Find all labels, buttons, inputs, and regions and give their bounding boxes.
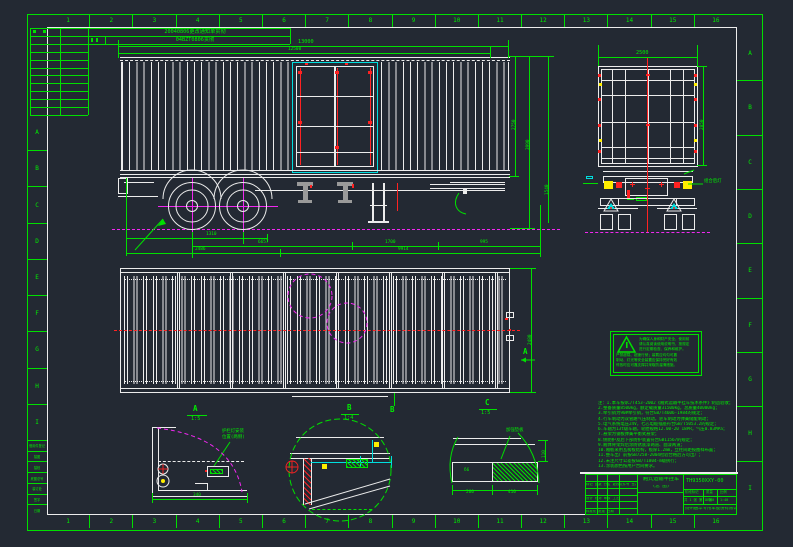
warning-text: 为确保人身和财产安全，使用前请认真阅读使用说明书，按规定进行定期检查、保养和维护… bbox=[616, 337, 696, 370]
drawing-stroke bbox=[601, 95, 695, 96]
tb-scale-value: 1:40 bbox=[720, 499, 728, 502]
detail-c-scale: 1:5 bbox=[481, 411, 490, 416]
ground-line bbox=[112, 229, 560, 230]
drawing-stroke bbox=[717, 489, 718, 504]
drawing-stroke bbox=[352, 184, 354, 188]
drawing-stroke bbox=[683, 504, 737, 505]
zone-letter: C bbox=[737, 135, 763, 189]
drawing-stroke bbox=[210, 469, 223, 474]
mini-table: 借用件登记描图描校底图总号装订处签字日期 bbox=[27, 440, 47, 515]
mini-table-row: 日期 bbox=[27, 504, 47, 515]
dim-overall-length: 13000 bbox=[298, 40, 314, 45]
drawing-stroke bbox=[603, 171, 693, 172]
drawing-stroke bbox=[493, 463, 537, 481]
drawing-stroke bbox=[368, 221, 389, 223]
drawing-stroke bbox=[192, 178, 193, 234]
drawing-stroke bbox=[296, 126, 374, 127]
dim-frame-height: 1540 bbox=[546, 184, 550, 195]
rear-centerline bbox=[647, 58, 648, 232]
drawing-stroke bbox=[30, 107, 88, 108]
detail-c-cell: δ6 bbox=[464, 469, 469, 473]
drawing-stroke bbox=[304, 458, 311, 505]
drawing-stroke bbox=[661, 182, 662, 187]
drawing-stroke bbox=[510, 268, 536, 269]
drawing-stroke bbox=[152, 427, 153, 497]
detail-b-scale: 1:4 bbox=[344, 416, 353, 421]
tb-left-row3: 标准化 批准 日期 bbox=[586, 510, 636, 513]
drawing-stroke bbox=[548, 57, 549, 223]
drawing-stroke bbox=[298, 121, 302, 124]
tb-mass-value: 8500 bbox=[706, 499, 714, 502]
drawing-stroke bbox=[292, 396, 388, 397]
drawing-stroke bbox=[601, 158, 695, 159]
zone-letter: D bbox=[27, 223, 47, 259]
zone-letter: I bbox=[737, 461, 763, 515]
tb-left-row2: 设计 校对 审核 工艺 bbox=[586, 497, 636, 500]
drawing-stroke bbox=[126, 238, 267, 239]
drawing-stroke bbox=[337, 68, 338, 165]
drawing-stroke bbox=[370, 205, 387, 206]
plan-centerline bbox=[114, 330, 520, 331]
zone-number: 13 bbox=[564, 14, 607, 27]
drawing-stroke bbox=[370, 190, 387, 191]
drawing-stroke bbox=[192, 232, 193, 258]
drawing-stroke bbox=[30, 52, 88, 53]
drawing-stroke bbox=[352, 242, 353, 250]
drawing-stroke bbox=[280, 249, 281, 257]
drawing-stroke bbox=[30, 44, 290, 45]
drawing-stroke bbox=[120, 60, 510, 61]
drawing-stroke bbox=[585, 232, 710, 233]
drawing-stroke bbox=[598, 45, 599, 66]
drawing-stroke bbox=[598, 98, 601, 101]
drawing-stroke bbox=[490, 47, 491, 58]
zone-number: 4 bbox=[176, 14, 219, 27]
zone-letter: C bbox=[27, 186, 47, 222]
drawing-stroke bbox=[509, 329, 511, 331]
drawing-stroke bbox=[30, 68, 88, 69]
drawing-stroke bbox=[598, 124, 601, 127]
drawing-stroke bbox=[657, 208, 697, 209]
drawing-stroke bbox=[335, 146, 339, 149]
detail-c-callout: 加强垫板 bbox=[506, 429, 524, 433]
detail-c-dim-2: 410 bbox=[508, 491, 516, 495]
drawing-stroke bbox=[694, 124, 697, 127]
tb-mass-label: 质量 bbox=[706, 491, 713, 494]
zone-number: 14 bbox=[607, 14, 650, 27]
drawing-stroke bbox=[598, 208, 638, 209]
drawing-stroke bbox=[368, 121, 372, 124]
zone-strip-bottom: 12345678910111213141516 bbox=[47, 515, 737, 528]
drawing-stroke bbox=[625, 70, 626, 163]
drawing-stroke bbox=[509, 176, 519, 177]
detail-a-callout-1: 护栏灯安装 bbox=[222, 430, 244, 434]
tb-product-sub: (总 图) bbox=[640, 485, 682, 489]
drawing-stroke bbox=[243, 232, 244, 244]
drawing-stroke bbox=[585, 501, 637, 502]
dim-kingpin-to-axle: 9914 bbox=[398, 248, 409, 252]
lamp-callout: 组合后灯 bbox=[704, 180, 722, 184]
mini-table-row: 签字 bbox=[27, 494, 47, 505]
drawing-stroke bbox=[118, 46, 509, 47]
drawing-stroke bbox=[538, 461, 548, 462]
zone-number: 14 bbox=[607, 515, 650, 528]
drawing-stroke bbox=[335, 71, 339, 74]
drawing-stroke bbox=[322, 464, 327, 469]
drawing-stroke bbox=[374, 442, 379, 447]
detail-a-callout-2: 位置(两侧) bbox=[222, 436, 245, 440]
drawing-stroke bbox=[601, 80, 695, 81]
zone-number: 16 bbox=[694, 14, 737, 27]
drawing-stroke bbox=[298, 200, 312, 203]
technical-notes: 注：1.本车按QC/T453-2002《厢式运输半挂车技术条件》制造验收；2.整… bbox=[598, 401, 738, 469]
zone-number: 15 bbox=[651, 515, 694, 528]
drawing-stroke bbox=[683, 496, 737, 497]
stop-lamp-left bbox=[616, 182, 622, 188]
drawing-stroke bbox=[599, 139, 602, 142]
detail-c-dim-1: 260 bbox=[466, 491, 474, 495]
drawing-stroke bbox=[343, 186, 348, 201]
drawing-stroke bbox=[694, 83, 697, 86]
drawing-stroke bbox=[152, 493, 153, 503]
detail-c-dim-right: 110 bbox=[543, 450, 547, 458]
zone-number: 7 bbox=[305, 515, 348, 528]
dim-body-length: 12500 bbox=[288, 48, 301, 52]
zone-number: 13 bbox=[564, 515, 607, 528]
drawing-stroke bbox=[697, 66, 707, 67]
zone-number: 3 bbox=[132, 14, 175, 27]
drawing-stroke bbox=[510, 392, 536, 393]
mini-table-row: 装订处 bbox=[27, 483, 47, 494]
zone-number: 15 bbox=[651, 14, 694, 27]
kingpin bbox=[463, 188, 467, 194]
zone-number: 10 bbox=[435, 14, 478, 27]
drawing-stroke bbox=[598, 74, 601, 77]
drawing-stroke bbox=[124, 182, 154, 183]
drawing-stroke bbox=[118, 53, 491, 54]
dim-rear-height: 2850 bbox=[701, 119, 705, 130]
drawing-stroke bbox=[243, 178, 244, 234]
zone-letter: F bbox=[737, 298, 763, 352]
drawing-stroke bbox=[601, 147, 695, 148]
drawing-stroke bbox=[120, 170, 510, 171]
tb-scale-label: 比例 bbox=[720, 491, 727, 494]
drawing-stroke bbox=[120, 174, 510, 175]
zone-number: 2 bbox=[89, 14, 132, 27]
zone-strip-right: ABCDEFGHI bbox=[737, 27, 763, 515]
drawing-stroke bbox=[30, 36, 290, 37]
drawing-stroke bbox=[383, 183, 385, 221]
zone-letter: I bbox=[27, 404, 47, 440]
drawing-stroke bbox=[158, 461, 244, 462]
drawing-stroke bbox=[312, 509, 372, 510]
zone-number: 6 bbox=[262, 14, 305, 27]
drawing-stroke bbox=[207, 483, 208, 491]
drawing-stroke bbox=[158, 427, 159, 491]
drawing-stroke bbox=[247, 493, 248, 503]
drawing-stroke bbox=[158, 490, 247, 491]
stop-lamp-right bbox=[674, 182, 680, 188]
detail-c-label: C bbox=[485, 399, 490, 407]
detail-a-label: A bbox=[193, 405, 198, 413]
detail-a-scale: 1:5 bbox=[191, 417, 200, 422]
zone-number: 8 bbox=[348, 515, 391, 528]
zone-number: 9 bbox=[392, 515, 435, 528]
dim-gear-span: 1700 bbox=[385, 241, 396, 245]
drawing-stroke bbox=[30, 28, 31, 115]
drawing-stroke bbox=[43, 30, 46, 33]
zone-number: 10 bbox=[435, 515, 478, 528]
drawing-stroke bbox=[455, 444, 535, 445]
drawing-stroke bbox=[124, 381, 506, 382]
zone-letter: H bbox=[737, 406, 763, 460]
drawing-stroke bbox=[627, 190, 630, 198]
zone-letter: H bbox=[27, 368, 47, 404]
drawing-stroke bbox=[618, 198, 619, 206]
drawing-stroke bbox=[585, 508, 637, 509]
drawing-stroke bbox=[683, 474, 684, 515]
drawing-stroke bbox=[105, 36, 106, 44]
drawing-stroke bbox=[298, 71, 302, 74]
zone-number: 8 bbox=[348, 14, 391, 27]
drawing-stroke bbox=[598, 150, 601, 153]
drawing-stroke bbox=[637, 492, 683, 493]
drawing-stroke bbox=[601, 122, 695, 123]
drawing-stroke bbox=[30, 75, 88, 76]
drawing-stroke bbox=[683, 70, 684, 163]
tb-stage-label: 阶段标记 bbox=[685, 491, 699, 494]
drawing-stroke bbox=[195, 483, 207, 484]
drawing-stroke bbox=[290, 453, 390, 454]
detail-b-label: B bbox=[347, 404, 352, 412]
drawing-stroke bbox=[88, 28, 89, 115]
drawing-stroke bbox=[30, 99, 88, 100]
zone-number: 1 bbox=[47, 14, 89, 27]
zone-number: 1 bbox=[47, 515, 89, 528]
drawing-stroke bbox=[96, 38, 98, 42]
rear-wheel bbox=[682, 214, 695, 230]
zone-number: 11 bbox=[478, 14, 521, 27]
drawing-stroke bbox=[430, 184, 505, 185]
warning-line: 停放时应可靠支撑并采取防溜滑措施。 bbox=[616, 363, 696, 368]
drawing-stroke bbox=[694, 139, 697, 142]
dim-front-span: 995 bbox=[480, 241, 488, 245]
zone-letter: E bbox=[27, 259, 47, 295]
detail-a-dim: 340 bbox=[193, 494, 201, 498]
drawing-stroke bbox=[346, 459, 368, 468]
drawing-stroke bbox=[305, 63, 308, 65]
zone-number: 4 bbox=[176, 515, 219, 528]
mini-table-row: 借用件登记 bbox=[27, 440, 47, 451]
zone-number: 16 bbox=[694, 515, 737, 528]
dim-rear-overhang: 2486 bbox=[195, 248, 206, 252]
drawing-stroke bbox=[300, 68, 301, 165]
drawing-stroke bbox=[670, 70, 671, 163]
tb-left-row1: 标记 处数 分区 更改文件号 签名 bbox=[586, 483, 636, 486]
zone-letter: G bbox=[737, 352, 763, 406]
drawing-stroke bbox=[585, 488, 637, 489]
drawing-stroke bbox=[632, 182, 633, 187]
drawing-stroke bbox=[30, 60, 88, 61]
drawing-stroke bbox=[152, 499, 247, 500]
drawing-stroke bbox=[452, 485, 453, 495]
zone-letter: E bbox=[737, 243, 763, 297]
drawing-stroke bbox=[290, 28, 291, 44]
drawing-stroke bbox=[438, 242, 439, 250]
drawing-stroke bbox=[91, 38, 93, 42]
zone-letter: B bbox=[737, 80, 763, 134]
cad-drawing-canvas: 12345678910111213141516 1234567891011121… bbox=[0, 0, 793, 547]
zone-number: 11 bbox=[478, 515, 521, 528]
drawing-stroke bbox=[370, 68, 371, 165]
drawing-stroke bbox=[452, 490, 538, 491]
tail-lamp-left bbox=[604, 181, 613, 189]
zone-number: 3 bbox=[132, 515, 175, 528]
drawing-stroke bbox=[310, 185, 312, 188]
mini-table-row: 底图总号 bbox=[27, 472, 47, 483]
drawing-stroke bbox=[703, 66, 704, 166]
section-b-marker: B bbox=[390, 406, 395, 414]
drawing-stroke bbox=[30, 28, 290, 29]
mini-table-row: 描图 bbox=[27, 451, 47, 462]
drawing-stroke bbox=[586, 176, 593, 179]
note-line: 13.涂装颜色按用户合同要求。 bbox=[598, 464, 738, 469]
drawing-stroke bbox=[118, 196, 158, 197]
drawing-stroke bbox=[450, 182, 505, 183]
drawing-stroke bbox=[694, 150, 697, 153]
drawing-stroke bbox=[296, 96, 374, 97]
zone-number: 5 bbox=[219, 14, 262, 27]
zone-letter: A bbox=[737, 27, 763, 80]
drawing-stroke bbox=[338, 200, 352, 203]
drawing-stroke bbox=[585, 481, 637, 482]
drawing-stroke bbox=[296, 152, 374, 153]
drawing-stroke bbox=[506, 335, 514, 341]
drawing-stroke bbox=[33, 30, 36, 33]
drawing-stroke bbox=[303, 186, 308, 201]
drawing-stroke bbox=[192, 246, 540, 247]
section-a-marker: A bbox=[523, 348, 528, 356]
dim-axle-spacing: 1310 bbox=[206, 233, 217, 237]
zone-strip-left: ABCDEFGHI bbox=[27, 115, 47, 440]
drawing-stroke bbox=[205, 470, 207, 472]
dim-overall-height: 3990 bbox=[527, 139, 531, 150]
zone-letter: F bbox=[27, 295, 47, 331]
drawing-stroke bbox=[637, 474, 638, 515]
drawing-stroke bbox=[697, 165, 707, 166]
zone-letter: G bbox=[27, 331, 47, 367]
drawing-stroke bbox=[694, 98, 697, 101]
zone-number: 5 bbox=[219, 515, 262, 528]
drawing-stroke bbox=[126, 178, 127, 256]
drawing-stroke bbox=[30, 115, 88, 116]
drawing-stroke bbox=[120, 177, 510, 178]
drawing-stroke bbox=[30, 83, 88, 84]
zone-number: 12 bbox=[521, 515, 564, 528]
drawing-stroke bbox=[124, 279, 506, 280]
drawing-stroke bbox=[505, 318, 508, 320]
rear-wheel bbox=[664, 214, 677, 230]
drawing-stroke bbox=[538, 440, 548, 441]
zone-number: 6 bbox=[262, 515, 305, 528]
rear-wheel bbox=[600, 214, 613, 230]
tb-product-name: 厢式运输半挂车 bbox=[640, 477, 682, 482]
drawing-stroke bbox=[612, 70, 613, 163]
drawing-stroke bbox=[531, 268, 532, 393]
drawing-stroke bbox=[126, 253, 540, 254]
drawing-stroke bbox=[453, 438, 521, 439]
drawing-stroke bbox=[296, 437, 384, 438]
drawing-stroke bbox=[30, 91, 88, 92]
drawing-stroke bbox=[583, 183, 598, 184]
drawing-stroke bbox=[391, 456, 392, 468]
drawing-stroke bbox=[585, 495, 637, 496]
drawing-stroke bbox=[368, 71, 372, 74]
drawing-stroke bbox=[697, 45, 698, 66]
drawing-stroke bbox=[311, 458, 312, 505]
drawing-stroke bbox=[372, 183, 374, 221]
tail-lamp-right bbox=[683, 181, 692, 189]
drawing-stroke bbox=[676, 198, 677, 206]
dim-wheelbase: 6657 bbox=[258, 241, 269, 245]
drawing-stroke bbox=[60, 28, 61, 115]
zone-number: 7 bbox=[305, 14, 348, 27]
mini-table-row: 描校 bbox=[27, 461, 47, 472]
revision-row2: 04BZT0806贯彻 bbox=[110, 38, 280, 43]
rear-wheel bbox=[618, 214, 631, 230]
drawing-stroke bbox=[430, 188, 505, 189]
zone-letter: B bbox=[27, 150, 47, 186]
drawing-stroke bbox=[537, 485, 538, 495]
tb-drawing-number: TH9350XXY-00 bbox=[686, 479, 723, 484]
drawing-stroke bbox=[397, 183, 398, 211]
zone-strip-top: 12345678910111213141516 bbox=[47, 14, 737, 27]
zone-number: 12 bbox=[521, 14, 564, 27]
dim-overall-width: 2500 bbox=[636, 51, 649, 56]
dim-plan-width: 2480 bbox=[529, 334, 533, 345]
drawing-stroke bbox=[158, 206, 278, 207]
drawing-stroke bbox=[492, 485, 493, 495]
drawing-stroke bbox=[599, 83, 602, 86]
zone-number: 9 bbox=[392, 14, 435, 27]
zone-letter: D bbox=[737, 189, 763, 243]
drawing-stroke bbox=[152, 427, 176, 428]
drawing-stroke bbox=[372, 440, 373, 462]
dim-body-height: 2750 bbox=[513, 119, 517, 130]
drawing-stroke bbox=[540, 205, 541, 257]
revision-row1: 20040806更改通知单贯彻 bbox=[105, 30, 285, 35]
drawing-stroke bbox=[120, 57, 510, 58]
drawing-stroke bbox=[694, 74, 697, 77]
drawing-stroke bbox=[510, 228, 535, 229]
tb-company: 扬州通华专用车股份有限公司 bbox=[685, 507, 736, 511]
zone-number: 2 bbox=[89, 515, 132, 528]
drawing-stroke bbox=[345, 63, 348, 65]
drawing-stroke bbox=[118, 40, 119, 58]
drawing-stroke bbox=[515, 57, 516, 177]
zone-letter: A bbox=[27, 115, 47, 150]
